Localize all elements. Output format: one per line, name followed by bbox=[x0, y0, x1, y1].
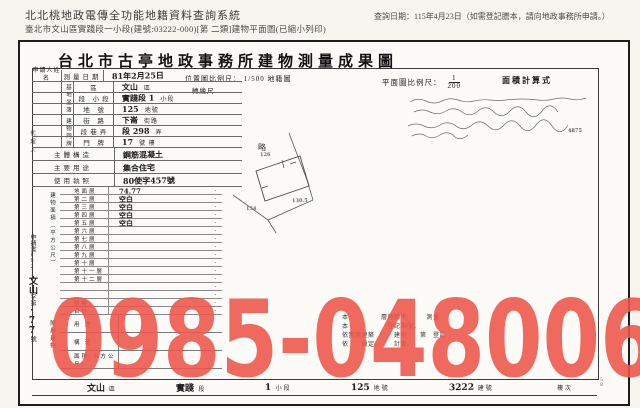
floor-area-value bbox=[109, 230, 214, 232]
location-scale-value: 1/500 bbox=[244, 75, 265, 83]
row-label: 段巷弄 bbox=[74, 126, 114, 136]
row-unit: 地號 bbox=[145, 104, 159, 114]
floor-label: 第四層 bbox=[74, 211, 109, 218]
area-group-label: 建物面積（平方公尺） bbox=[48, 192, 56, 267]
applicant-cell-empty bbox=[32, 126, 62, 136]
site-group-label: 基地坐落 bbox=[64, 84, 72, 114]
floor-area-value bbox=[109, 270, 214, 272]
applicant-cell-empty bbox=[32, 137, 62, 147]
row-value-handwritten: 125 bbox=[114, 104, 139, 114]
fraction-denominator: 200 bbox=[448, 82, 462, 90]
row-unit: 區 bbox=[144, 82, 151, 92]
floor-label: 第十層 bbox=[74, 259, 109, 266]
row-value-handwritten: 段 298 bbox=[114, 126, 150, 137]
floor-label: 第五層 bbox=[74, 219, 109, 226]
survey-date-value: 81年2月25日 bbox=[104, 69, 242, 82]
applicant-cell-empty bbox=[32, 104, 62, 114]
plan-scale: 平面圖比例尺： 1 200 bbox=[382, 75, 467, 90]
row-label: 主要用途 bbox=[32, 161, 115, 173]
applicant-cell-empty bbox=[32, 82, 62, 92]
plan-scale-fraction: 1 200 bbox=[448, 75, 462, 90]
floor-area-value bbox=[109, 254, 214, 256]
row-value-handwritten: 實踐段 1 bbox=[114, 93, 155, 104]
floor-label: 第三層 bbox=[74, 203, 109, 210]
applicant-cell-empty bbox=[32, 93, 62, 103]
floor-label: 第七層 bbox=[74, 235, 109, 242]
query-subject-line: 臺北市文山區實踐段一小段(建號:03222-000)[第 二類]建物平面圖(已縮… bbox=[25, 23, 326, 35]
building-group-label: 建物門牌 bbox=[64, 118, 72, 148]
applicant-label: 申請人姓名 bbox=[32, 70, 62, 81]
plan-scale-label: 平面圖比例尺： bbox=[382, 77, 442, 88]
location-scale-suffix: 地籍圖 bbox=[267, 75, 291, 83]
row-label: 使用執照 bbox=[32, 174, 115, 186]
survey-date-row: 申請人姓名 測量日期 81年2月25日 bbox=[32, 70, 242, 82]
floor-area-value bbox=[109, 246, 214, 248]
row-unit: 弄 bbox=[155, 126, 162, 136]
survey-date-label: 測量日期 bbox=[62, 70, 104, 81]
row-unit: 小段 bbox=[160, 93, 174, 103]
floor-label: 第九層 bbox=[74, 251, 109, 258]
floor-area-value bbox=[109, 262, 214, 264]
system-title: 北北桃地政電傳全功能地籍資料查詢系統 bbox=[25, 7, 241, 23]
row-unit: 號 樓 bbox=[139, 137, 156, 147]
floor-area-value: 空白 bbox=[109, 217, 214, 229]
row-value-handwritten: 文山 bbox=[114, 82, 138, 92]
floor-label: 第二層 bbox=[74, 195, 109, 202]
row-label: 街 路 bbox=[74, 115, 114, 125]
floor-label: 第八層 bbox=[74, 243, 109, 250]
floor-label: 第六層 bbox=[74, 227, 109, 234]
row-label: 地 號 bbox=[74, 104, 114, 114]
sketch-annotation: 130.5 bbox=[292, 198, 308, 204]
row-label: 門 牌 bbox=[74, 137, 114, 147]
row-unit: 街路 bbox=[144, 115, 158, 125]
sketch-annotation: 126 bbox=[260, 152, 271, 158]
floor-label: 地面層 bbox=[74, 187, 109, 194]
applicant-cell-empty bbox=[32, 115, 62, 125]
scanned-document-page: 北北桃地政電傳全功能地籍資料查詢系統 臺北市文山區實踐段一小段(建號:03222… bbox=[0, 0, 640, 408]
site-sketch bbox=[210, 102, 370, 287]
row-label: 段 小段 bbox=[74, 93, 114, 103]
row-label: 主體構造 bbox=[32, 148, 115, 160]
query-date: 查詢日期：115年4月23日（如需登記謄本，請向地政事務所申請。） bbox=[374, 11, 610, 22]
area-calc-label: 面積計算式 bbox=[502, 75, 552, 86]
row-value-handwritten: 下崙 bbox=[114, 115, 138, 125]
row-value-handwritten: 17 bbox=[114, 137, 133, 147]
floor-area-value bbox=[109, 238, 214, 240]
handwritten-calculation-scribbles bbox=[400, 90, 635, 145]
sketch-annotation: 134 bbox=[246, 206, 257, 212]
floor-label: 第十一層 bbox=[74, 267, 109, 274]
row-label: 區 bbox=[74, 82, 114, 92]
watermark-phone-number: 0985-048006 bbox=[48, 287, 640, 393]
